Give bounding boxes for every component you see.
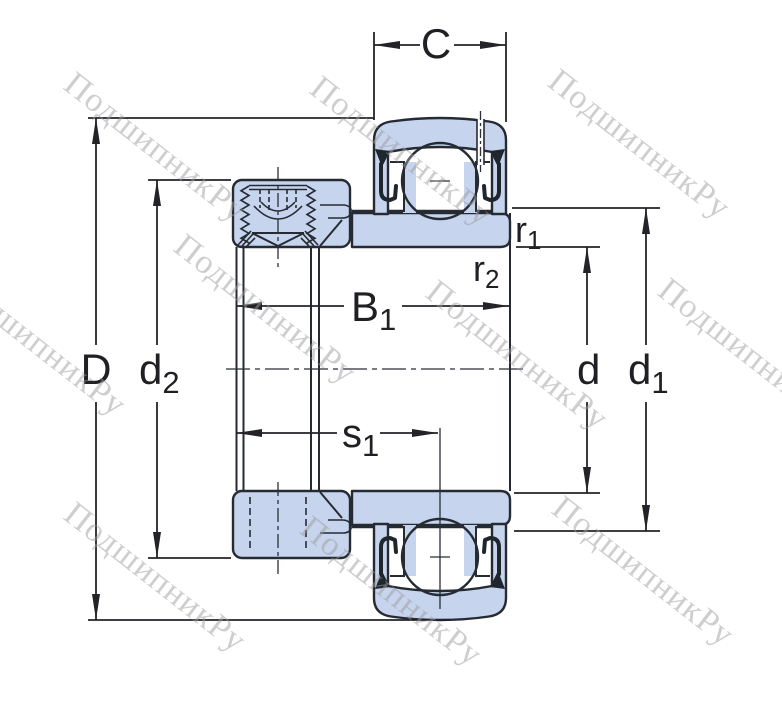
dimension-C: C <box>374 20 506 122</box>
arrowhead <box>583 467 591 493</box>
arrowhead <box>480 41 506 49</box>
arrowhead <box>374 41 400 49</box>
dim-label-C: C <box>421 20 451 67</box>
arrowhead <box>92 594 100 620</box>
watermark: ПодшипникРу <box>651 271 782 436</box>
watermark: ПодшипникРу <box>0 259 133 424</box>
dimension-s1: s1 <box>236 412 438 463</box>
bearing-technical-drawing: C D d2 B1 s1 <box>0 0 782 704</box>
arrowhead <box>583 247 591 273</box>
locking-collar-top <box>233 180 350 247</box>
dim-label-r2: r2 <box>473 248 499 294</box>
dim-label-r1: r1 <box>515 209 541 255</box>
arrowhead <box>153 180 161 206</box>
bearing-drawing-page: C D d2 B1 s1 <box>0 0 782 704</box>
watermark: ПодшипникРу <box>57 495 253 660</box>
arrowhead <box>642 505 650 531</box>
dim-label-B1: B1 <box>351 283 396 337</box>
dim-label-d1: d1 <box>628 346 669 400</box>
arrowhead <box>642 208 650 234</box>
arrowhead <box>412 429 438 437</box>
arrowhead <box>236 429 262 437</box>
watermark: ПодшипникРу <box>167 227 363 392</box>
lubrication-hole <box>477 111 484 172</box>
dim-label-d2: d2 <box>139 346 180 400</box>
watermark: ПодшипникРу <box>541 62 737 227</box>
dim-label-s1: s1 <box>342 412 379 463</box>
watermark: ПодшипникРу <box>545 489 741 654</box>
